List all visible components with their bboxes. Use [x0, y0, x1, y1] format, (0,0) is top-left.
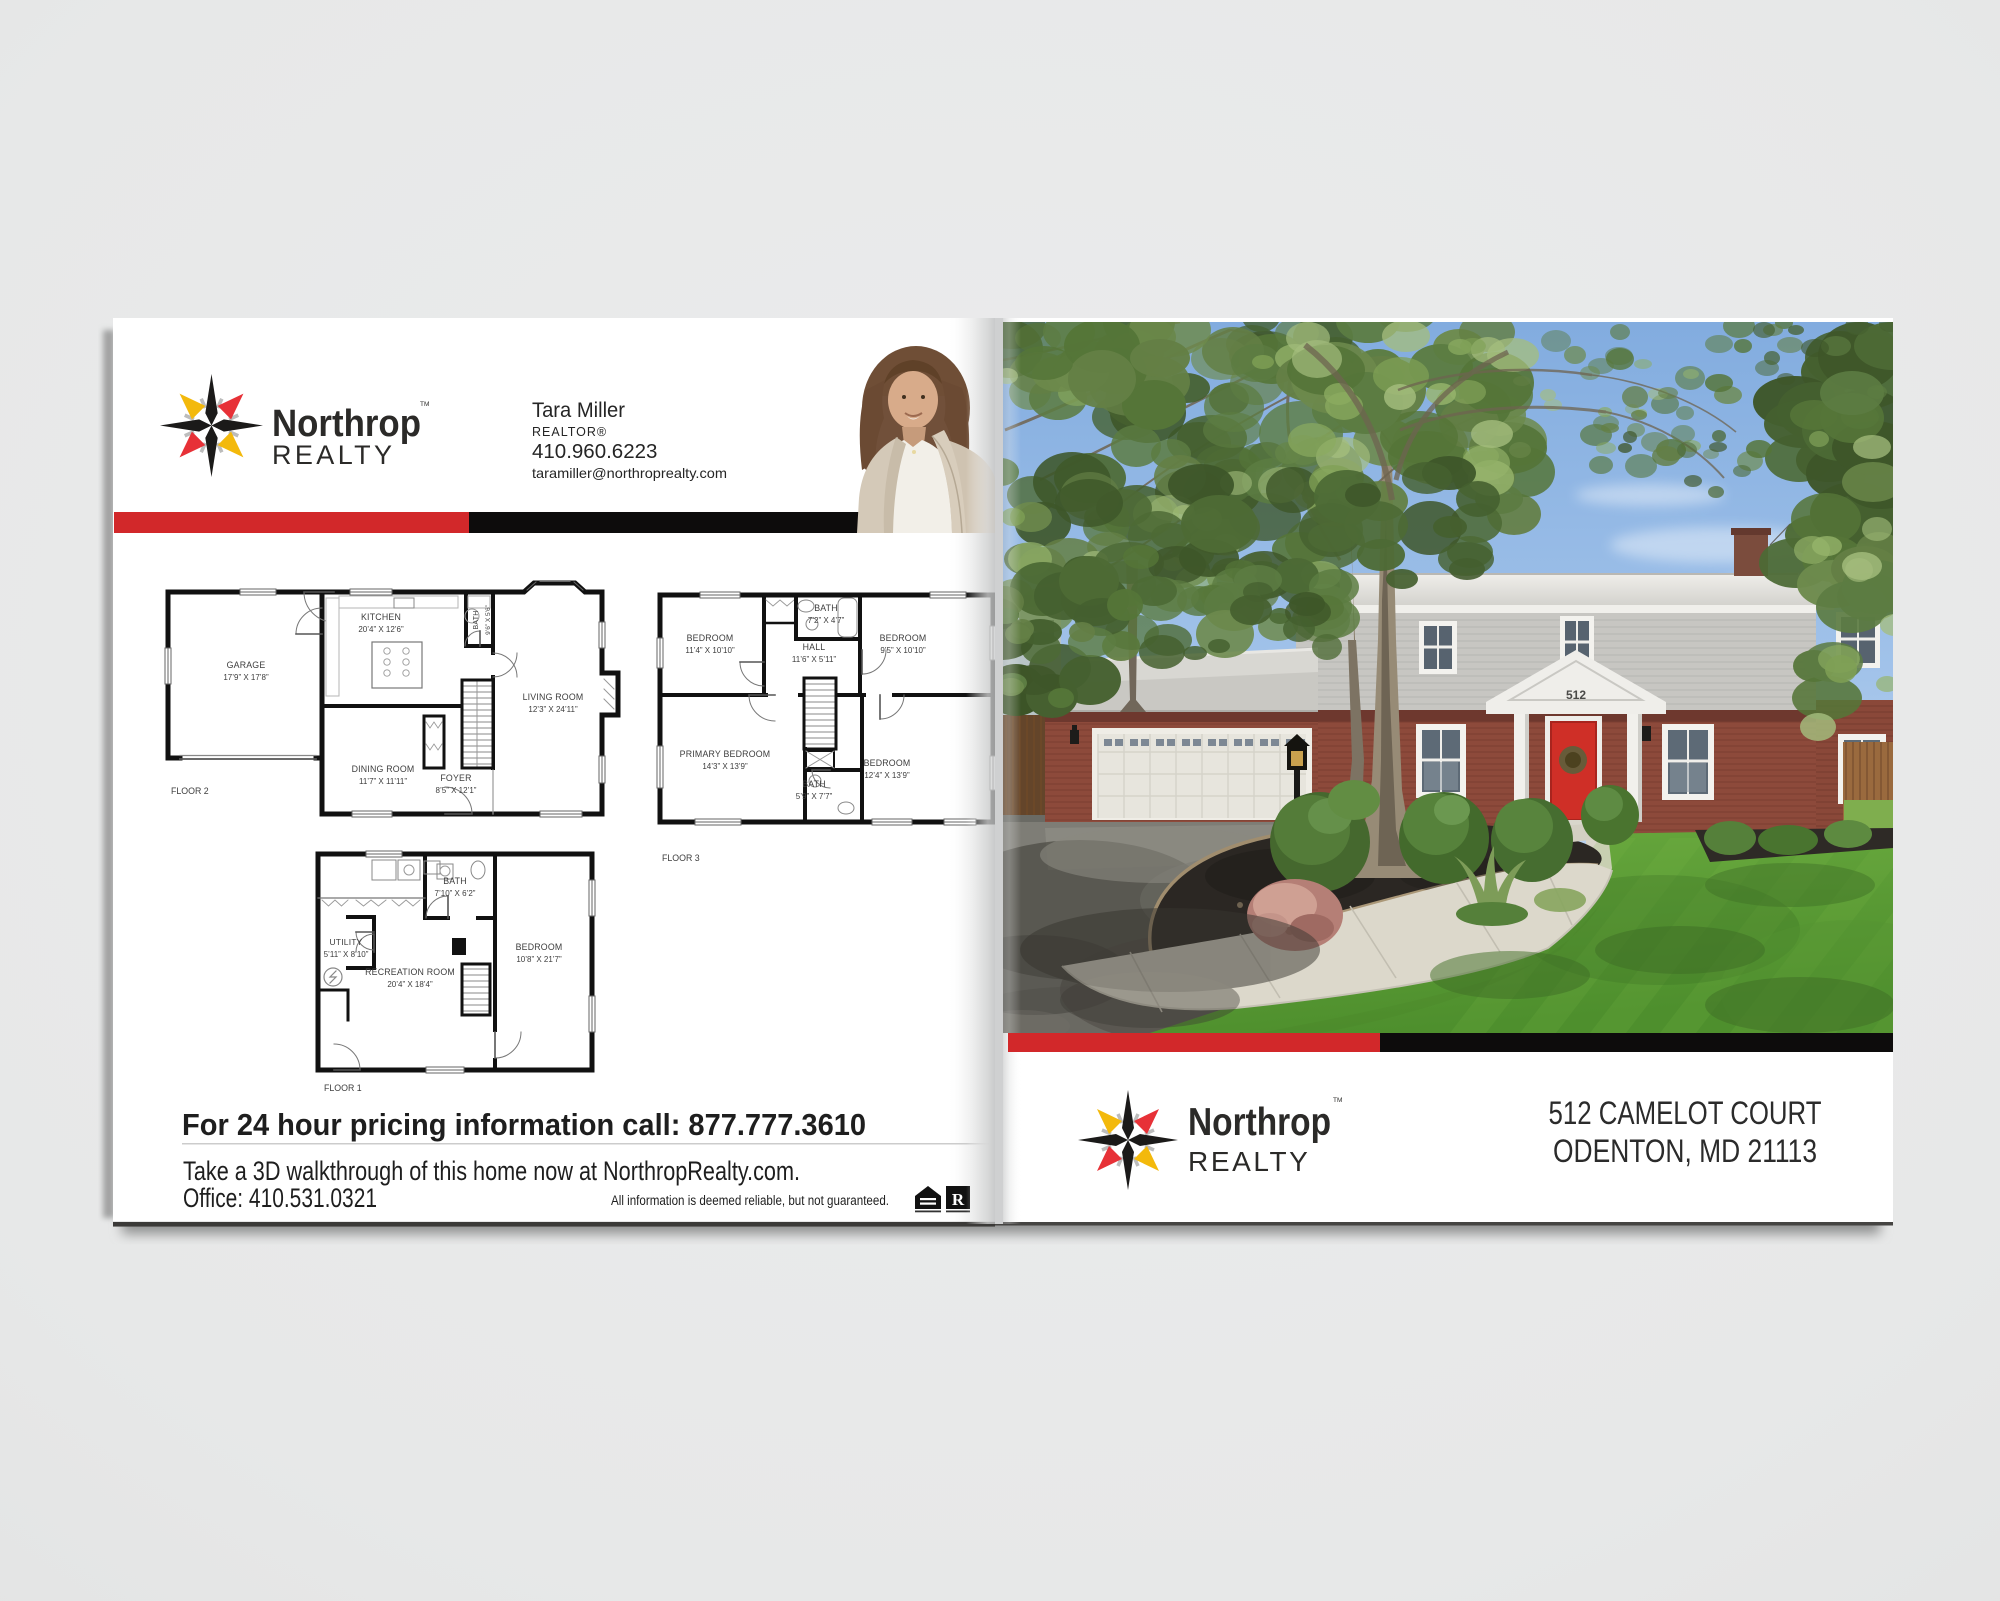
svg-text:FLOOR 2: FLOOR 2 [171, 786, 209, 796]
svg-text:FOYER: FOYER [440, 773, 471, 783]
svg-text:Tara Miller: Tara Miller [532, 399, 625, 422]
svg-text:REALTY: REALTY [1188, 1146, 1310, 1177]
svg-text:Northrop: Northrop [272, 403, 421, 445]
svg-text:10’8” X 21’7”: 10’8” X 21’7” [516, 955, 562, 964]
svg-text:ODENTON, MD 21113: ODENTON, MD 21113 [1553, 1133, 1817, 1169]
svg-text:REALTY: REALTY [272, 440, 395, 470]
svg-text:REALTOR®: REALTOR® [532, 425, 607, 439]
svg-text:RECREATION ROOM: RECREATION ROOM [365, 967, 455, 977]
svg-text:9’5” X 10’10”: 9’5” X 10’10” [880, 646, 926, 655]
svg-text:BATH: BATH [473, 611, 480, 630]
svg-text:11’4” X 10’10”: 11’4” X 10’10” [685, 646, 735, 655]
svg-text:TM: TM [420, 401, 429, 408]
svg-text:For 24 hour pricing informatio: For 24 hour pricing information call: 87… [182, 1107, 866, 1142]
svg-text:5’9” X 7’7”: 5’9” X 7’7” [796, 792, 833, 801]
svg-text:7’10” X 6’2”: 7’10” X 6’2” [435, 889, 476, 898]
svg-text:11’6” X 5’11”: 11’6” X 5’11” [792, 655, 837, 664]
svg-text:All information is deemed reli: All information is deemed reliable, but … [611, 1193, 889, 1208]
svg-text:12’4” X 13’9”: 12’4” X 13’9” [864, 771, 910, 780]
svg-text:FLOOR 3: FLOOR 3 [662, 853, 700, 863]
svg-text:11’7” X 11’11”: 11’7” X 11’11” [359, 777, 407, 786]
svg-text:512: 512 [1566, 688, 1586, 702]
svg-text:8’5” X 12’1”: 8’5” X 12’1” [436, 786, 477, 795]
svg-text:7’2” X 4’7”: 7’2” X 4’7” [808, 616, 845, 625]
svg-text:20’4” X 12’6”: 20’4” X 12’6” [358, 625, 404, 634]
svg-text:UTILITY: UTILITY [329, 937, 362, 947]
svg-text:BATH: BATH [443, 876, 467, 886]
svg-text:KITCHEN: KITCHEN [361, 612, 401, 622]
svg-text:9’6” X 5’6”: 9’6” X 5’6” [485, 605, 492, 635]
svg-text:17’9” X 17’8”: 17’9” X 17’8” [223, 673, 269, 682]
svg-text:20’4” X 18’4”: 20’4” X 18’4” [387, 980, 433, 989]
svg-text:512 CAMELOT COURT: 512 CAMELOT COURT [1549, 1095, 1822, 1131]
svg-text:GARAGE: GARAGE [227, 660, 266, 670]
svg-text:taramiller@northroprealty.com: taramiller@northroprealty.com [532, 465, 727, 481]
svg-text:BEDROOM: BEDROOM [864, 758, 911, 768]
svg-text:410.960.6223: 410.960.6223 [532, 440, 657, 463]
svg-text:PRIMARY BEDROOM: PRIMARY BEDROOM [680, 749, 771, 759]
svg-text:Office: 410.531.0321: Office: 410.531.0321 [183, 1183, 377, 1213]
svg-text:BATH: BATH [802, 779, 826, 789]
svg-text:Take a 3D walkthrough of this: Take a 3D walkthrough of this home now a… [183, 1156, 800, 1186]
svg-text:14’3” X 13’9”: 14’3” X 13’9” [702, 762, 748, 771]
svg-text:BEDROOM: BEDROOM [516, 942, 563, 952]
svg-text:Northrop: Northrop [1188, 1101, 1331, 1144]
svg-text:BATH: BATH [814, 603, 838, 613]
svg-text:BEDROOM: BEDROOM [687, 633, 734, 643]
svg-text:DINING ROOM: DINING ROOM [352, 764, 415, 774]
svg-text:TM: TM [1333, 1097, 1342, 1104]
svg-text:R: R [952, 1190, 965, 1209]
svg-text:HALL: HALL [803, 642, 826, 652]
svg-text:BEDROOM: BEDROOM [880, 633, 927, 643]
svg-text:5’11” X 8’10”: 5’11” X 8’10” [324, 950, 369, 959]
svg-text:LIVING ROOM: LIVING ROOM [523, 692, 584, 702]
svg-text:FLOOR 1: FLOOR 1 [324, 1083, 362, 1093]
svg-text:12’3” X 24’11”: 12’3” X 24’11” [528, 705, 578, 714]
